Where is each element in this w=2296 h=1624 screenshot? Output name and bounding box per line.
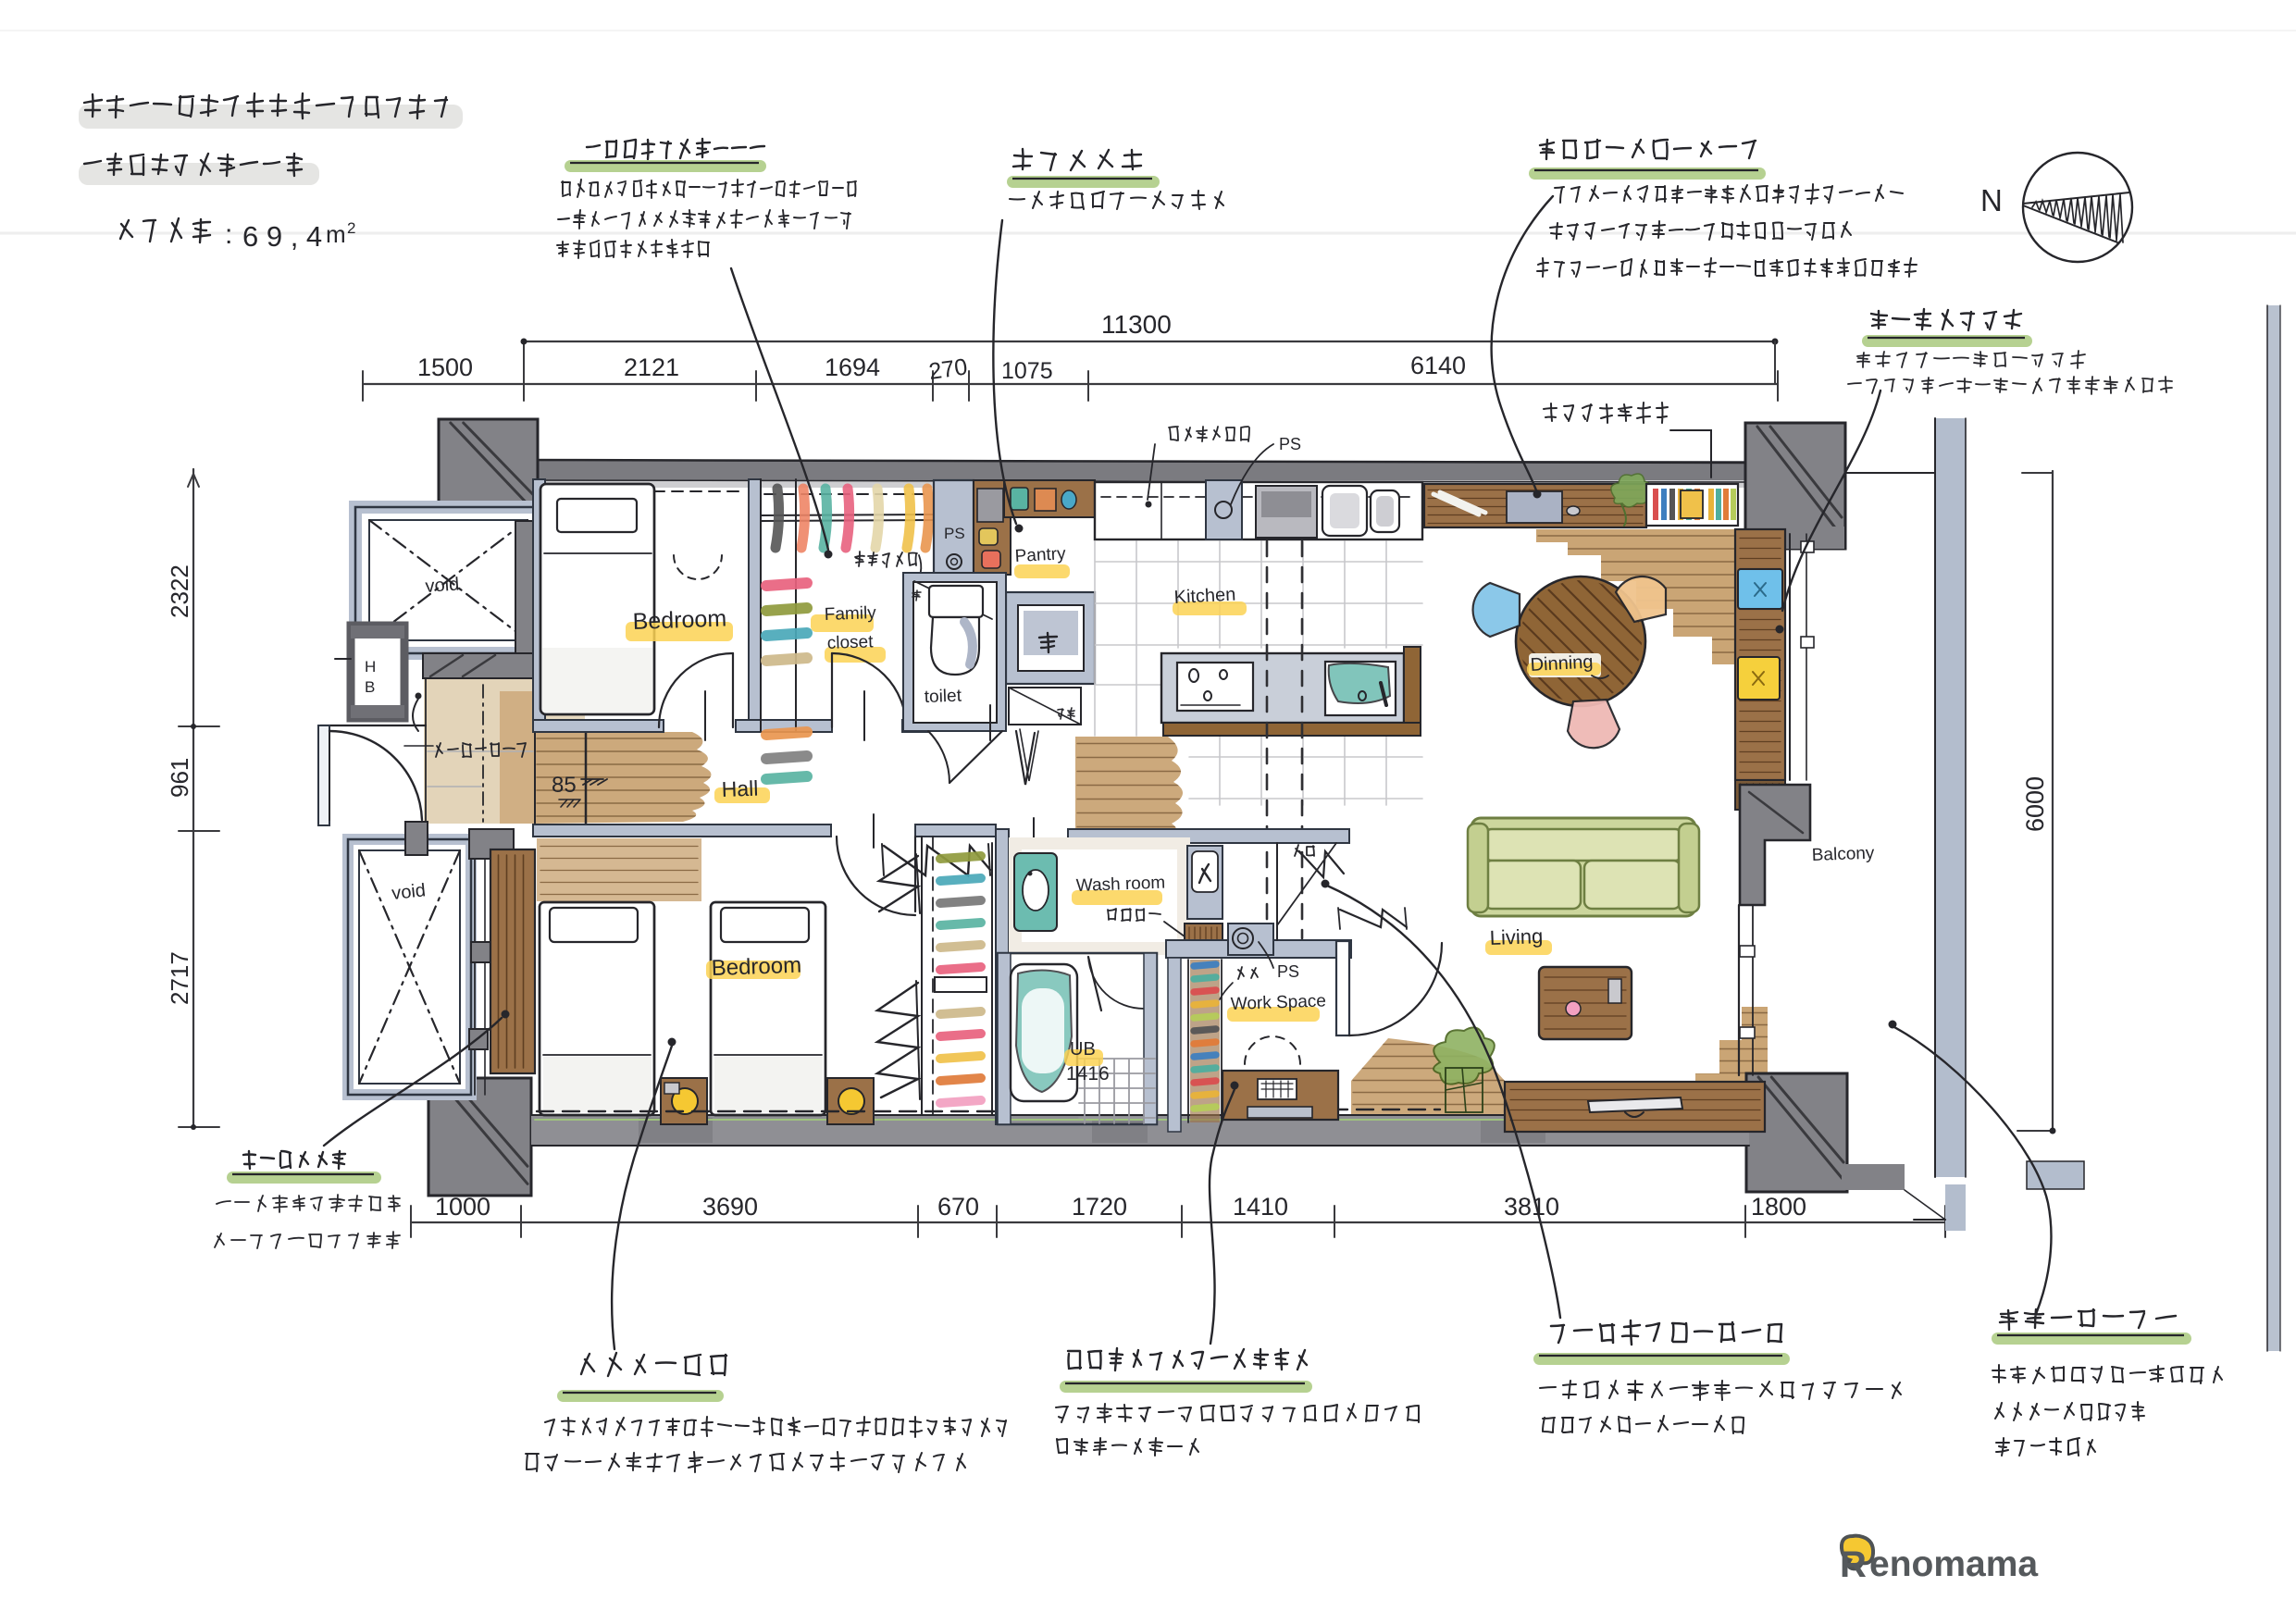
svg-text:toilet: toilet bbox=[924, 687, 962, 707]
svg-text:1416: 1416 bbox=[1066, 1063, 1110, 1085]
svg-text:m: m bbox=[326, 220, 346, 248]
svg-text:1500: 1500 bbox=[417, 353, 473, 381]
svg-text:Work Space: Work Space bbox=[1230, 991, 1326, 1014]
svg-text:670: 670 bbox=[937, 1193, 979, 1221]
svg-text:enomama: enomama bbox=[1869, 1544, 2038, 1584]
svg-text:Bedroom: Bedroom bbox=[632, 605, 726, 635]
svg-text:270: 270 bbox=[927, 353, 969, 385]
svg-text:6 9 , 4: 6 9 , 4 bbox=[242, 220, 322, 253]
svg-text:UB: UB bbox=[1070, 1039, 1096, 1060]
svg-text:1720: 1720 bbox=[1072, 1193, 1127, 1221]
svg-text:2: 2 bbox=[347, 219, 355, 237]
svg-text:Balcony: Balcony bbox=[1811, 844, 1875, 865]
svg-text:Kitchen: Kitchen bbox=[1173, 585, 1236, 608]
svg-text:1410: 1410 bbox=[1233, 1193, 1288, 1221]
svg-text:1075: 1075 bbox=[1001, 358, 1053, 384]
svg-text:961: 961 bbox=[166, 758, 193, 798]
svg-text:PS: PS bbox=[1279, 435, 1301, 453]
svg-text:H: H bbox=[365, 658, 376, 676]
svg-text:B: B bbox=[365, 678, 375, 696]
svg-text:void: void bbox=[391, 880, 427, 904]
svg-text:Family: Family bbox=[824, 603, 876, 625]
svg-text::: : bbox=[225, 219, 232, 250]
svg-text:3810: 3810 bbox=[1504, 1193, 1559, 1221]
svg-text:PS: PS bbox=[944, 525, 965, 542]
svg-text:Pantry: Pantry bbox=[1014, 544, 1066, 566]
svg-text:Dinning: Dinning bbox=[1530, 651, 1594, 676]
svg-text:2322: 2322 bbox=[166, 564, 193, 618]
svg-text:85: 85 bbox=[552, 773, 577, 798]
svg-text:N: N bbox=[1980, 183, 2003, 217]
svg-text:Hall: Hall bbox=[721, 776, 759, 801]
svg-text:R: R bbox=[1840, 1544, 1867, 1585]
svg-text:11300: 11300 bbox=[1101, 310, 1172, 339]
svg-text:closet: closet bbox=[826, 632, 874, 653]
svg-text:Bedroom: Bedroom bbox=[711, 953, 801, 981]
svg-text:1800: 1800 bbox=[1751, 1193, 1806, 1221]
svg-text:1694: 1694 bbox=[825, 353, 880, 381]
svg-text:3690: 3690 bbox=[702, 1193, 758, 1221]
svg-text:PS: PS bbox=[1277, 962, 1299, 981]
svg-text:2717: 2717 bbox=[166, 951, 193, 1005]
svg-text:Wash room: Wash room bbox=[1075, 874, 1165, 896]
svg-text:2121: 2121 bbox=[624, 353, 679, 381]
svg-text:6000: 6000 bbox=[2021, 776, 2049, 832]
svg-text:Living: Living bbox=[1489, 924, 1543, 949]
svg-text:6140: 6140 bbox=[1410, 352, 1466, 379]
svg-text:void: void bbox=[425, 574, 460, 597]
